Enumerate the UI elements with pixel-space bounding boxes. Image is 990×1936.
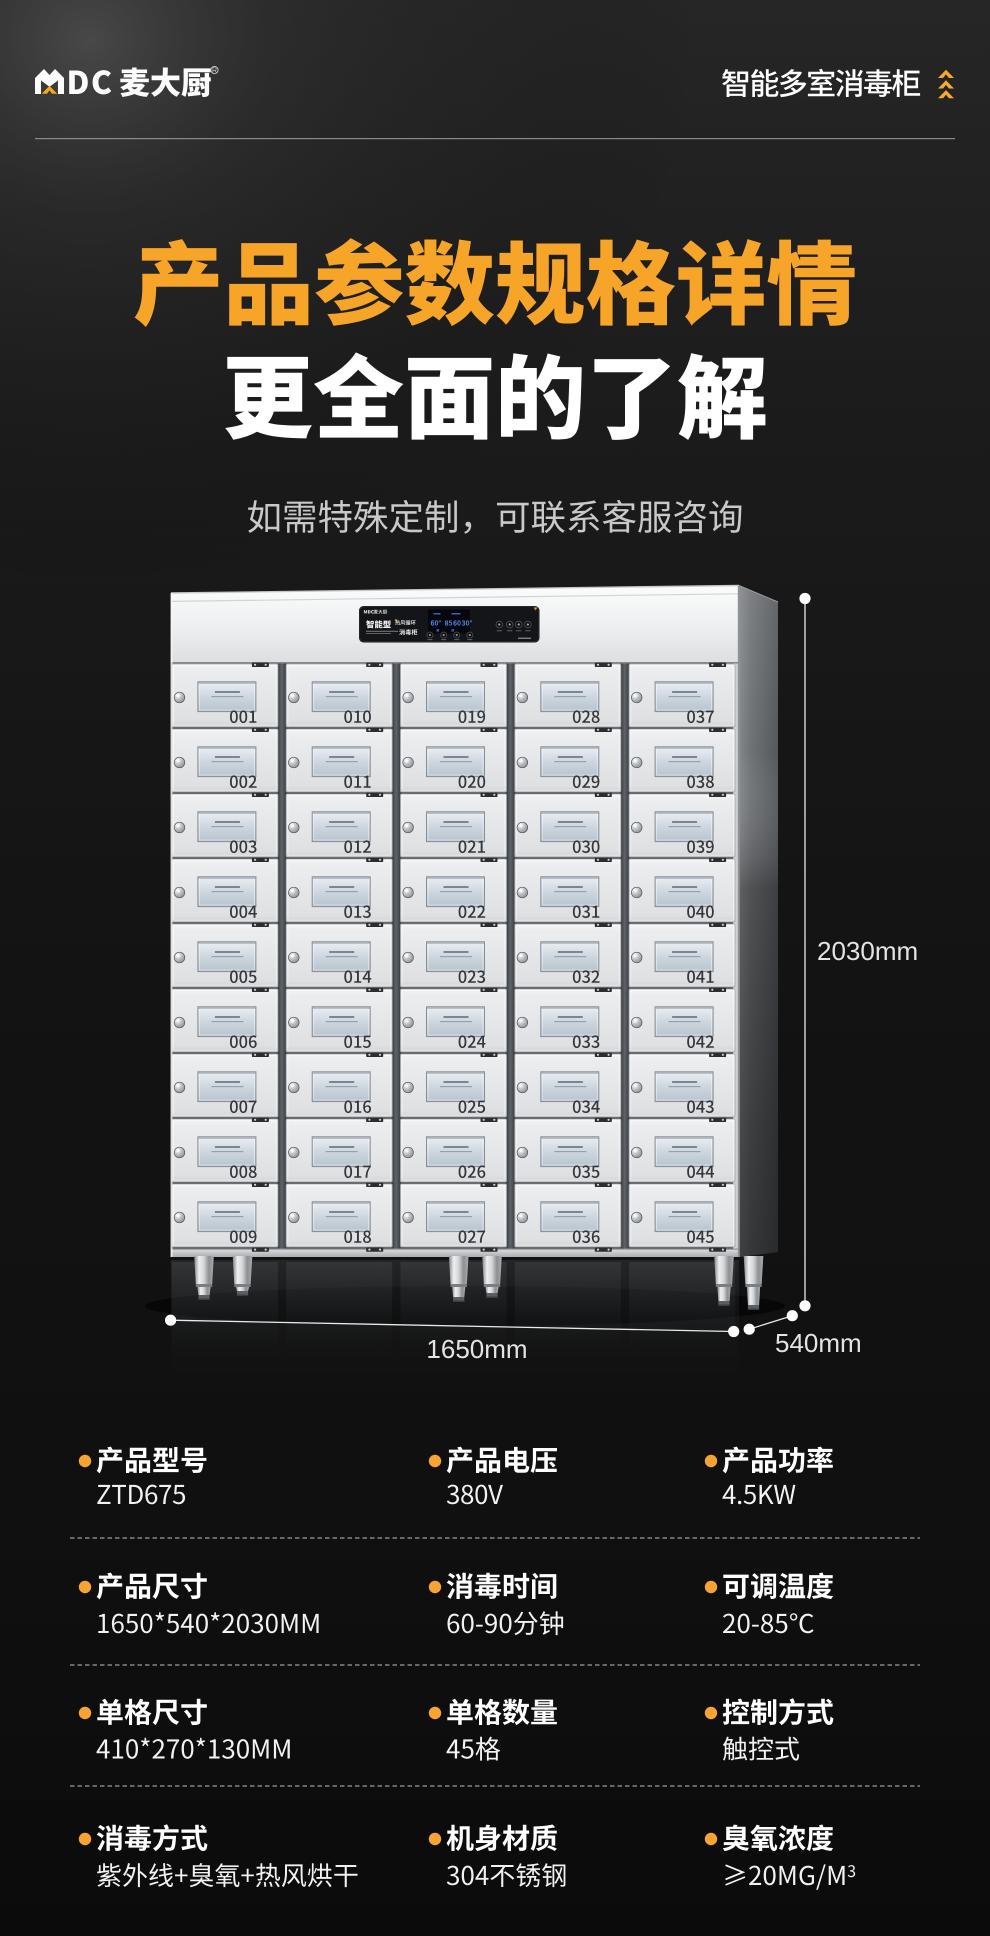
svg-text:R: R — [212, 68, 217, 75]
svg-text:2030mm: 2030mm — [817, 936, 918, 966]
svg-text:1650mm: 1650mm — [426, 1334, 527, 1364]
svg-text:540mm: 540mm — [775, 1328, 862, 1358]
